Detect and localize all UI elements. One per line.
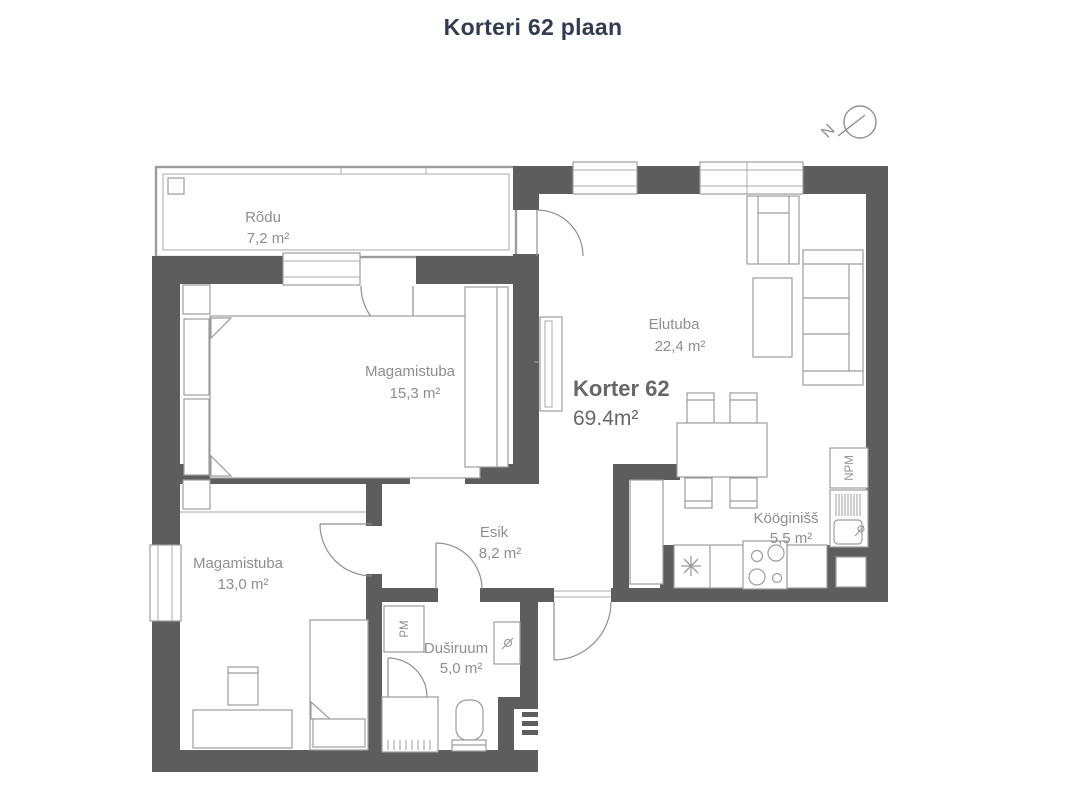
hall-area: 8,2 m² (479, 545, 522, 562)
hall-name: Esik (480, 524, 509, 541)
vent-hatch (522, 721, 538, 726)
apartment-area: 69.4m² (573, 407, 638, 430)
balcony-area: 7,2 m² (247, 230, 290, 247)
dishwasher-label: NPM (844, 455, 856, 481)
bedroom1-name: Magamistuba (365, 363, 456, 380)
compass-icon: N (818, 106, 876, 141)
vent-shaft (836, 557, 866, 587)
room-balcony (156, 167, 516, 257)
shower-area: 5,0 m² (440, 660, 483, 677)
stove (743, 541, 787, 589)
balcony-drain (168, 178, 184, 194)
bathroom-sink (494, 622, 520, 664)
chair (730, 478, 757, 508)
living-name: Elutuba (649, 316, 701, 333)
washer-label: PM (399, 620, 411, 637)
kitchen-sink (830, 490, 868, 547)
bedroom2-area: 13,0 m² (218, 576, 269, 593)
pillow (184, 319, 209, 395)
kitchen-area: 5,5 m² (770, 530, 813, 547)
pillow (313, 719, 365, 747)
dining-table (677, 423, 767, 477)
bedroom2-name: Magamistuba (193, 555, 284, 572)
bedroom2-furniture (180, 512, 368, 750)
compass-north-label: N (818, 121, 838, 141)
chair (685, 478, 712, 508)
pillow (184, 399, 209, 475)
dishwasher: NPM (830, 448, 868, 488)
entry-door (554, 591, 611, 660)
chair (730, 393, 757, 423)
bedroom2-hall-door (320, 524, 372, 576)
nightstand (183, 285, 210, 314)
bedroom1-area: 15,3 m² (390, 385, 441, 402)
vent-hatch (522, 712, 538, 717)
balcony-name: Rõdu (245, 209, 281, 226)
living-area: 22,4 m² (655, 338, 706, 355)
kitchen-name: Kööginišš (753, 510, 818, 527)
desk (193, 710, 292, 748)
bedroom1-furniture (183, 285, 508, 509)
living-window-2 (700, 162, 803, 194)
dining-set (677, 393, 767, 508)
hall-shower-door (436, 543, 482, 589)
washing-machine: PM (384, 606, 424, 652)
fridge-symbol (681, 556, 701, 576)
living-window-1 (573, 162, 637, 194)
vent-hatch (522, 730, 538, 735)
floor-plan-drawing: N (0, 0, 1066, 800)
bedroom2-window (150, 545, 181, 621)
shower-name: Duširuum (424, 640, 488, 657)
tall-cabinet (630, 480, 663, 584)
apartment-label: Korter 62 (573, 376, 670, 401)
nightstand (183, 480, 210, 509)
armchair (747, 196, 799, 264)
sofa (803, 250, 863, 385)
floor-plan-page: Korteri 62 plaan N (0, 0, 1066, 800)
wardrobe (465, 287, 508, 467)
coffee-table (753, 278, 792, 357)
shower (382, 658, 438, 752)
bedroom1-window (283, 253, 360, 285)
toilet (452, 700, 486, 751)
chair (687, 393, 714, 423)
balcony-living-door (537, 210, 583, 256)
